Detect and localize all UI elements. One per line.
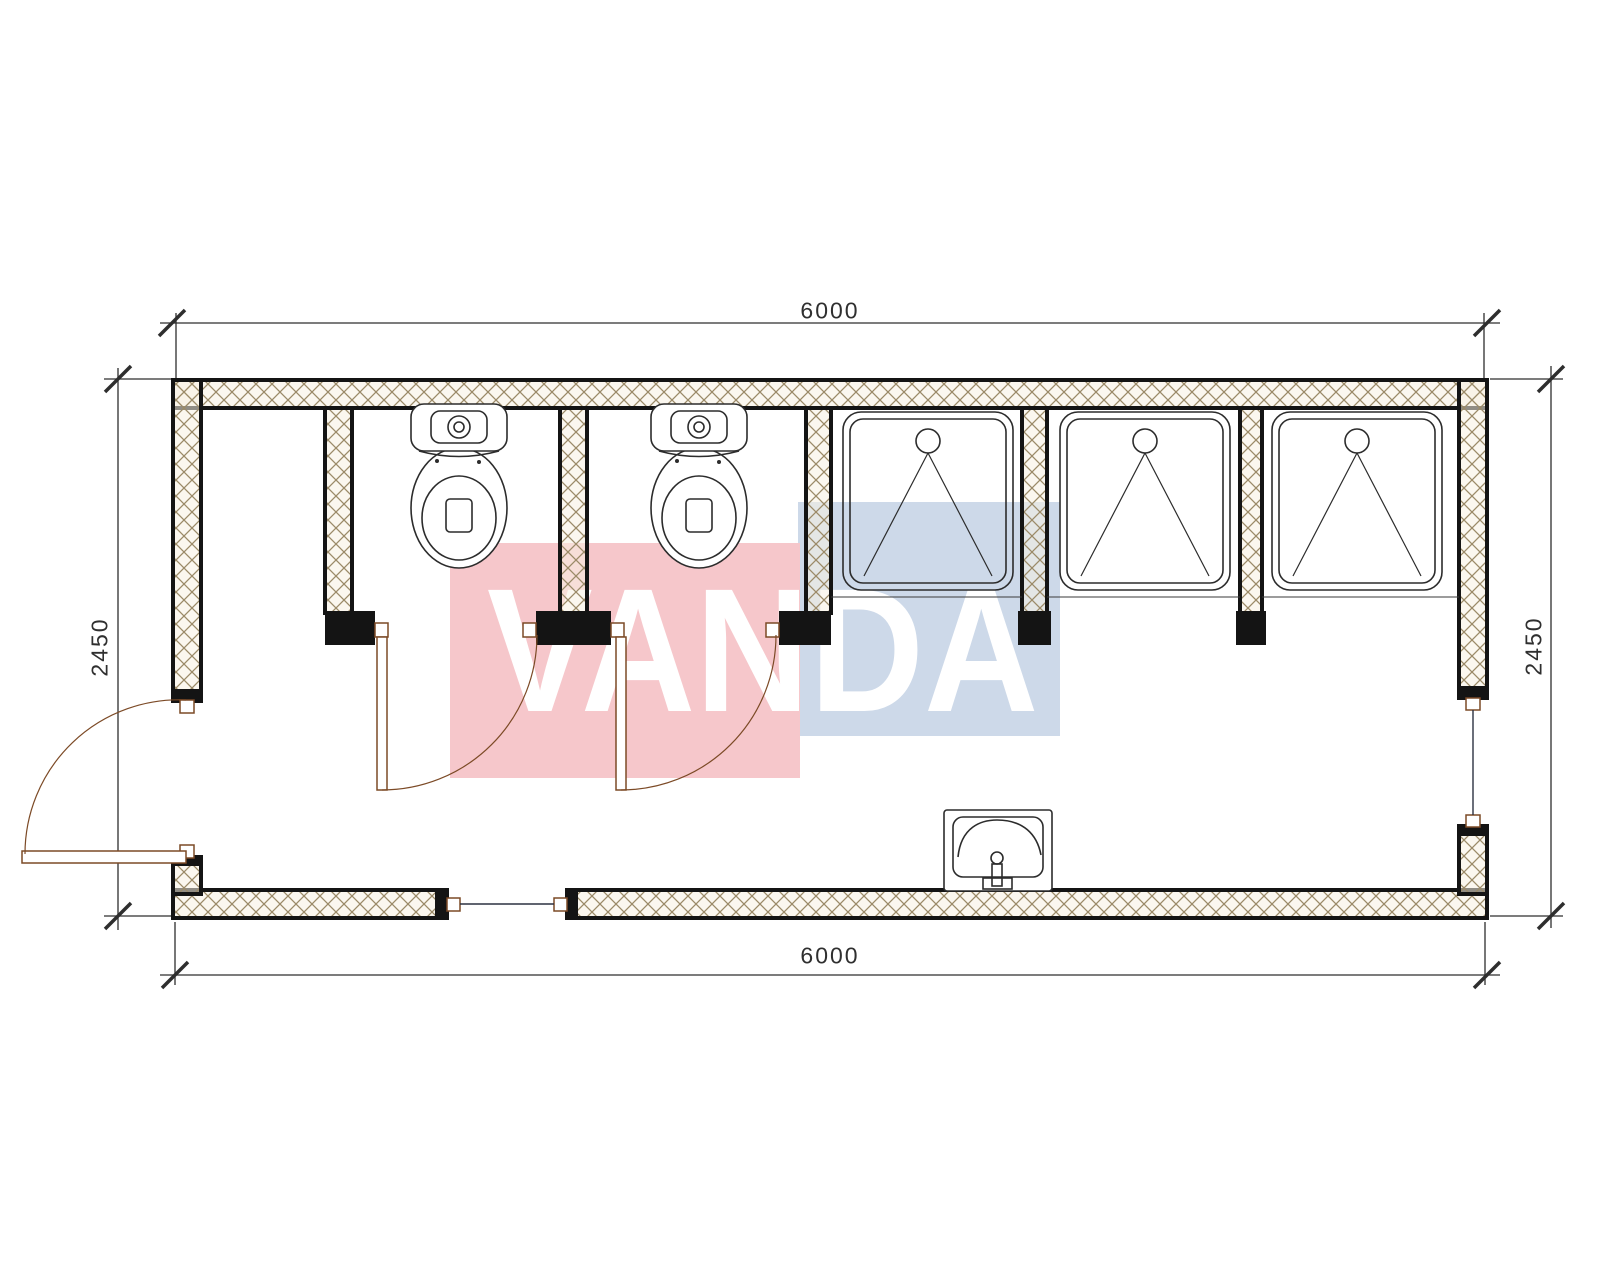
- wall-bottom-right-corner: [1459, 827, 1487, 894]
- door-frame: [375, 623, 388, 637]
- drawing-canvas: VANDA: [0, 0, 1600, 1280]
- door-swing-arc: [621, 635, 776, 790]
- partition-end-caps: [325, 611, 1266, 645]
- dimension-label-top: 6000: [800, 298, 859, 325]
- wall-top: [173, 380, 1487, 408]
- door-frame: [523, 623, 536, 637]
- wall-bottom-left-segment: [173, 890, 447, 918]
- shower-tray-3: [1272, 412, 1442, 590]
- washbasin: [944, 810, 1052, 891]
- door-frame: [1466, 698, 1480, 710]
- toilet-1: [411, 404, 507, 568]
- door-leaf-stall-2: [616, 637, 626, 790]
- door-leaf-entrance: [22, 851, 186, 863]
- partition-4: [1022, 408, 1047, 613]
- partition-5: [1240, 408, 1262, 613]
- wall-right: [1459, 380, 1487, 698]
- door-frame: [611, 623, 624, 637]
- dimension-label-right: 2450: [1521, 616, 1548, 675]
- partition-3: [806, 408, 831, 613]
- wall-bottom-right-segment: [567, 890, 1487, 918]
- wall-left: [173, 380, 201, 701]
- partition-1: [325, 408, 352, 613]
- shower-tray-2: [1060, 412, 1230, 590]
- partition-2: [560, 408, 587, 613]
- door-frame: [180, 700, 194, 713]
- door-leaf-stall-1: [377, 637, 387, 790]
- shower-tray-1: [843, 412, 1013, 590]
- door-swing-arc: [25, 700, 186, 854]
- door-frame: [554, 898, 567, 911]
- door-frame: [447, 898, 460, 911]
- dimension-label-bottom: 6000: [800, 943, 859, 970]
- door-frame: [1466, 815, 1480, 827]
- dimension-label-left: 2450: [87, 617, 114, 676]
- floor-plan-svg: [0, 0, 1600, 1280]
- door-swing-arc: [382, 635, 537, 790]
- door-frame: [766, 623, 779, 637]
- toilet-2: [651, 404, 747, 568]
- doors: [22, 623, 1480, 911]
- wall-end-caps: [171, 686, 1489, 920]
